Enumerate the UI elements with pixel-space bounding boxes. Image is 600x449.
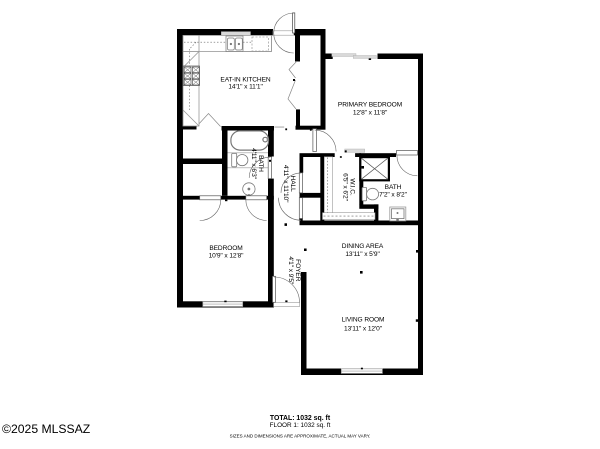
svg-text:BEDROOM: BEDROOM (209, 245, 242, 252)
svg-text:4'11" x 6'3": 4'11" x 6'3" (250, 148, 257, 180)
svg-text:13'11" x 12'0": 13'11" x 12'0" (344, 326, 383, 333)
svg-text:14'1" x 11'1": 14'1" x 11'1" (228, 84, 263, 91)
svg-text:BATH: BATH (385, 184, 402, 191)
svg-text:13'11" x 5'9": 13'11" x 5'9" (345, 251, 380, 258)
svg-text:DINING AREA: DINING AREA (342, 243, 384, 250)
svg-text:LIVING ROOM: LIVING ROOM (342, 316, 385, 323)
svg-text:4'1" x 9'5": 4'1" x 9'5" (287, 256, 294, 284)
svg-text:HALL: HALL (289, 176, 296, 193)
svg-text:4'11" x 11'10": 4'11" x 11'10" (282, 165, 289, 203)
svg-text:FOYER: FOYER (294, 259, 301, 282)
svg-text:©2025 MLSSAZ: ©2025 MLSSAZ (2, 422, 91, 436)
svg-text:SIZES AND DIMENSIONS ARE APPRO: SIZES AND DIMENSIONS ARE APPROXIMATE, AC… (230, 433, 371, 438)
svg-text:6'5" x 6'2": 6'5" x 6'2" (342, 173, 349, 201)
svg-text:W.I.C.: W.I.C. (349, 178, 356, 196)
svg-text:12'8" x 11'8": 12'8" x 11'8" (353, 109, 388, 116)
svg-text:PRIMARY BEDROOM: PRIMARY BEDROOM (338, 101, 402, 108)
svg-text:FLOOR 1: 1032 sq. ft: FLOOR 1: 1032 sq. ft (270, 422, 331, 429)
svg-text:10'9" x 12'8": 10'9" x 12'8" (209, 252, 245, 259)
svg-text:7'2" x 8'2": 7'2" x 8'2" (379, 191, 407, 198)
svg-text:EAT-IN KITCHEN: EAT-IN KITCHEN (220, 76, 270, 83)
svg-text:TOTAL: 1032 sq. ft: TOTAL: 1032 sq. ft (270, 415, 331, 422)
svg-text:BATH: BATH (257, 155, 264, 172)
